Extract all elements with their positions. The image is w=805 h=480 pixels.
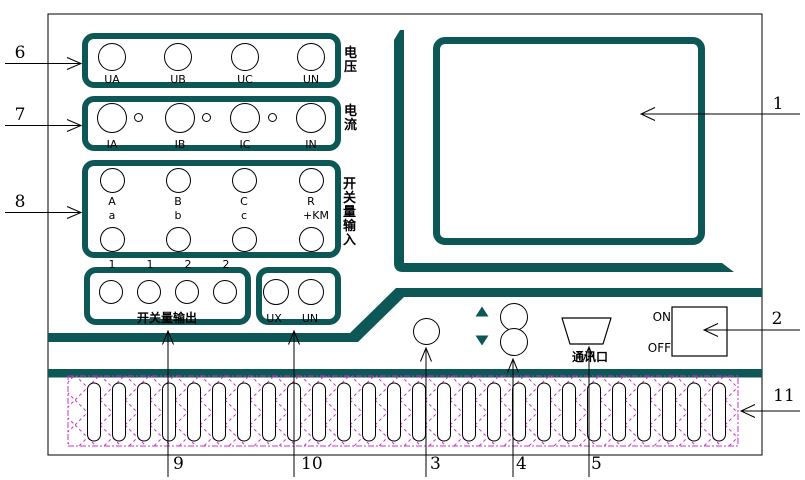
vent-slot: [688, 383, 701, 441]
vent-slot: [613, 383, 626, 441]
terminal-C: [232, 168, 257, 193]
output-terminal-2a: [175, 280, 199, 304]
terminal-a-lower: [100, 227, 125, 252]
test-point-c: [268, 113, 277, 122]
output-terminal-1a: [99, 280, 123, 304]
output-terminal-2b: [213, 280, 237, 304]
terminal-label-R: R: [307, 196, 315, 207]
vent-slot: [563, 383, 576, 441]
vent-slot: [388, 383, 401, 441]
vent-slot: [188, 383, 201, 441]
callout-7: 7: [15, 107, 26, 124]
terminal-km-lower: [299, 227, 324, 252]
terminal-label-a: a: [109, 210, 116, 221]
terminal-ux: [263, 279, 289, 305]
terminal-label-ia: IA: [107, 139, 118, 150]
vent-slot: [313, 383, 326, 441]
callout-1: 1: [773, 96, 784, 113]
down-triangle-icon: [476, 336, 489, 346]
terminal-label-ux: UX: [266, 313, 282, 324]
output-pin-label-2a: 2: [185, 259, 192, 270]
vent-slot: [288, 383, 301, 441]
terminal-ia: [97, 103, 127, 133]
vent-slot: [513, 383, 526, 441]
up-button: [500, 303, 528, 331]
comm-port-connector: [562, 318, 611, 344]
callout-9: 9: [173, 456, 184, 473]
vent-slot: [713, 383, 726, 441]
terminal-ic: [230, 103, 260, 133]
output-pin-label-1a: 1: [109, 259, 116, 270]
vent-slot: [463, 383, 476, 441]
callout-11: 11: [773, 388, 795, 405]
switch-input-group-label: 开关量输入: [343, 178, 357, 248]
vent-slot: [488, 383, 501, 441]
instrument-front-panel-diagram: UA UB UC UN 电压 IA IB IC IN 电流 A B C R a …: [0, 0, 805, 480]
terminal-label-ub: UB: [170, 74, 186, 85]
vent-slot: [263, 383, 276, 441]
vent-slot: [163, 383, 176, 441]
terminal-ua: [98, 43, 126, 71]
round-button: [413, 318, 440, 345]
terminal-un: [297, 43, 325, 71]
terminal-uc: [231, 43, 259, 71]
vent-slot: [338, 383, 351, 441]
terminal-label-A: A: [108, 196, 116, 207]
terminal-label-in: IN: [305, 139, 316, 150]
vent-slot: [638, 383, 651, 441]
switch-output-group-label: 开关量输出: [137, 312, 197, 324]
terminal-label-un: UN: [303, 74, 319, 85]
power-switch: [672, 307, 727, 356]
voltage-group-label: 电压: [344, 47, 358, 75]
callout-2: 2: [772, 311, 783, 328]
power-on-label: ON: [647, 311, 671, 323]
comm-port-label: 通讯口: [572, 351, 608, 363]
output-terminal-1b: [137, 280, 161, 304]
vent-slot: [213, 383, 226, 441]
terminal-A: [100, 168, 125, 193]
terminal-un-aux: [298, 279, 324, 305]
terminal-label-b: b: [175, 210, 182, 221]
callout-6: 6: [15, 45, 26, 62]
down-button: [500, 328, 528, 356]
terminal-ib: [165, 103, 195, 133]
test-point-b: [202, 113, 211, 122]
callout-8: 8: [15, 194, 26, 211]
vent-slot: [588, 383, 601, 441]
vent-slot: [538, 383, 551, 441]
terminal-label-ic: IC: [240, 139, 251, 150]
terminal-in: [296, 103, 326, 133]
lcd-screen: [433, 37, 705, 245]
vent-slot: [413, 383, 426, 441]
vent-slot: [113, 383, 126, 441]
vent-slot: [663, 383, 676, 441]
terminal-label-c: c: [241, 210, 247, 221]
terminal-b-lower: [166, 227, 191, 252]
output-pin-label-1b: 1: [147, 259, 154, 270]
current-group-label: 电流: [344, 105, 358, 133]
vent-slot: [138, 383, 151, 441]
power-off-label: OFF: [645, 342, 671, 354]
terminal-label-ib: IB: [175, 139, 186, 150]
terminal-label-C: C: [240, 196, 248, 207]
terminal-label-un-aux: UN: [302, 313, 318, 324]
terminal-label-km: +KM: [303, 210, 329, 221]
terminal-label-uc: UC: [237, 74, 253, 85]
callout-4: 4: [516, 456, 527, 473]
callout-3: 3: [430, 456, 441, 473]
terminal-label-B: B: [174, 196, 182, 207]
callout-5: 5: [591, 456, 602, 473]
output-pin-label-2b: 2: [223, 259, 230, 270]
terminal-R: [299, 168, 324, 193]
terminal-label-ua: UA: [104, 74, 120, 85]
test-point-a: [134, 113, 143, 122]
callout-10: 10: [301, 456, 323, 473]
terminal-c-lower: [232, 227, 257, 252]
terminal-B: [166, 168, 191, 193]
terminal-ub: [164, 43, 192, 71]
vent-slot: [438, 383, 451, 441]
vent-slot: [238, 383, 251, 441]
vent-slot: [88, 383, 101, 441]
up-triangle-icon: [476, 307, 489, 317]
vent-slot: [363, 383, 376, 441]
